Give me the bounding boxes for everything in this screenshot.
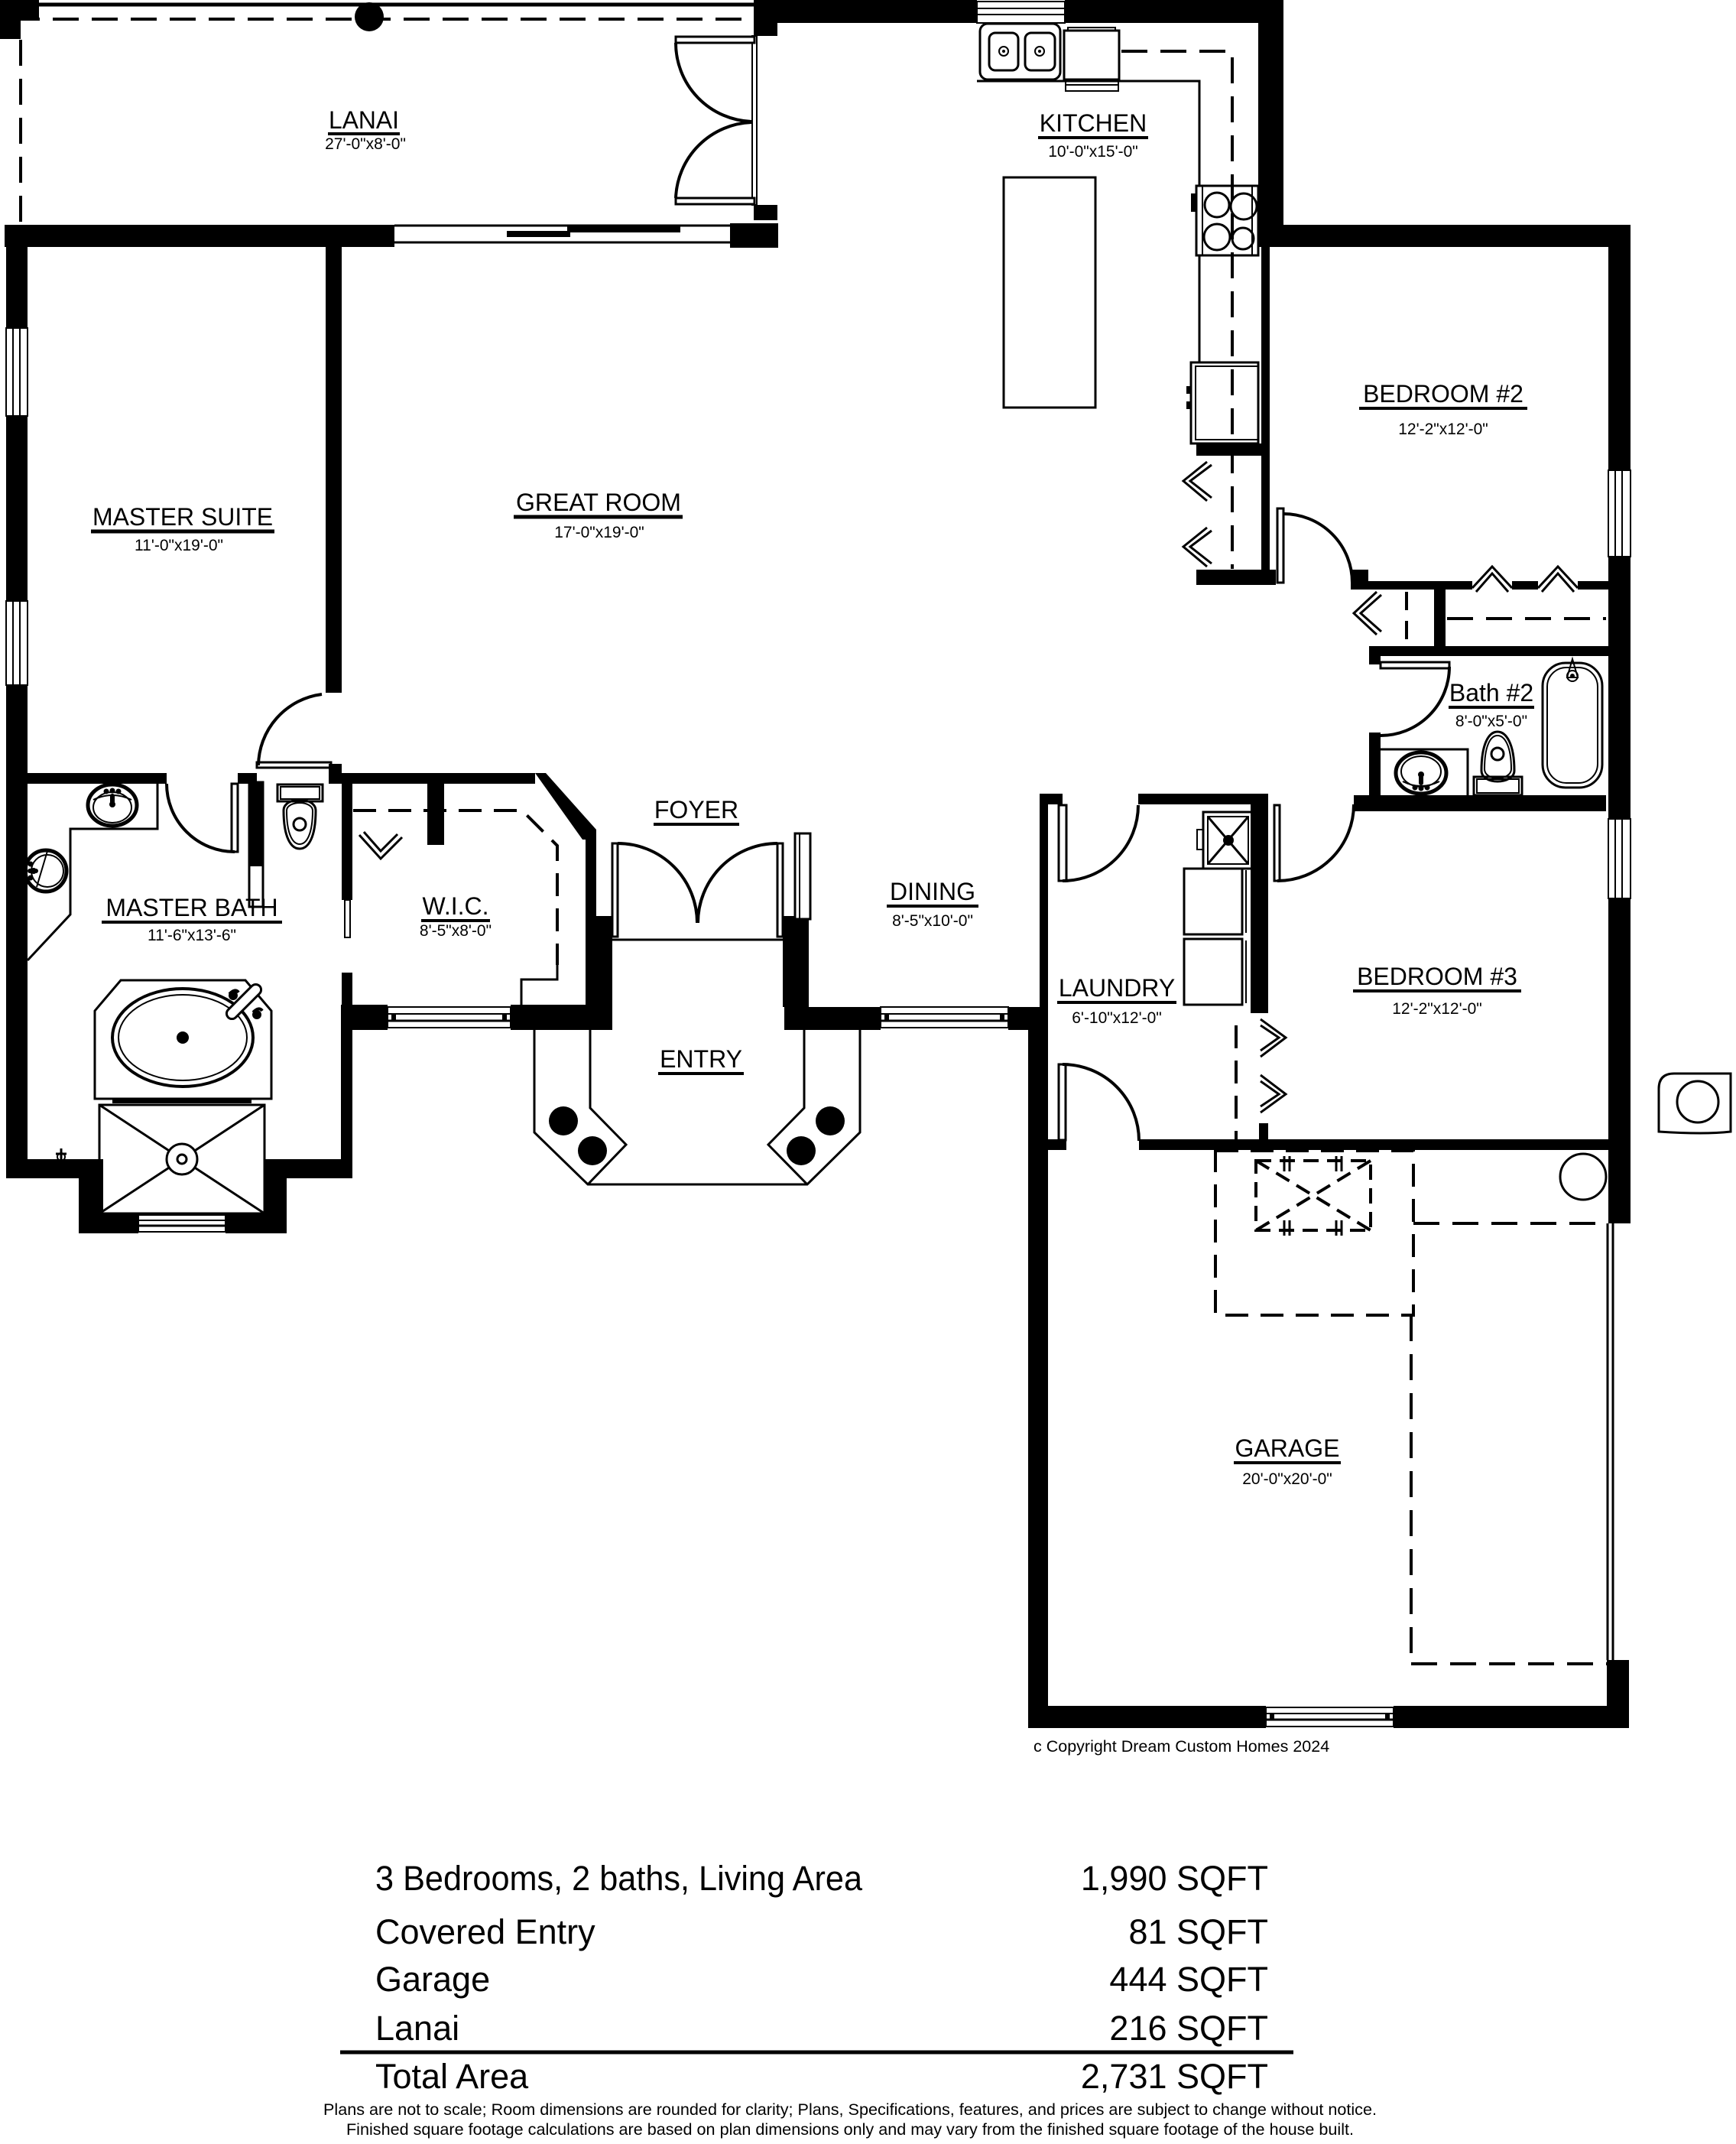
svg-text:GARAGE: GARAGE [1235, 1434, 1340, 1462]
svg-text:Total Area: Total Area [375, 2057, 529, 2096]
svg-text:12'-2"x12'-0": 12'-2"x12'-0" [1392, 1000, 1482, 1018]
svg-text:20'-0"x20'-0": 20'-0"x20'-0" [1242, 1470, 1332, 1488]
svg-text:8'-5"x8'-0": 8'-5"x8'-0" [420, 922, 492, 940]
svg-text:Lanai: Lanai [375, 2009, 459, 2048]
svg-text:MASTER BATH: MASTER BATH [105, 894, 277, 921]
svg-text:LANAI: LANAI [329, 106, 399, 134]
svg-text:c Copyright Dream Custom Homes: c Copyright Dream Custom Homes 2024 [1033, 1737, 1329, 1756]
svg-text:Garage: Garage [375, 1960, 490, 1999]
svg-text:3 Bedrooms, 2 baths, Living Ar: 3 Bedrooms, 2 baths, Living Area [375, 1859, 863, 1898]
svg-text:BEDROOM #2: BEDROOM #2 [1363, 380, 1523, 408]
svg-text:81 SQFT: 81 SQFT [1128, 1912, 1268, 1951]
svg-text:KITCHEN: KITCHEN [1040, 109, 1147, 137]
svg-text:6'-10"x12'-0": 6'-10"x12'-0" [1072, 1009, 1162, 1027]
svg-text:GREAT ROOM: GREAT ROOM [516, 489, 681, 516]
svg-text:LAUNDRY: LAUNDRY [1059, 974, 1175, 1002]
svg-text:8'-5"x10'-0": 8'-5"x10'-0" [892, 912, 973, 930]
svg-text:11'-6"x13'-6": 11'-6"x13'-6" [148, 927, 236, 944]
svg-text:2,731 SQFT: 2,731 SQFT [1081, 2057, 1268, 2096]
svg-text:27'-0"x8'-0": 27'-0"x8'-0" [325, 135, 406, 153]
svg-text:11'-0"x19'-0": 11'-0"x19'-0" [135, 537, 223, 554]
svg-text:DINING: DINING [890, 878, 975, 905]
svg-text:FOYER: FOYER [654, 796, 738, 823]
svg-text:216 SQFT: 216 SQFT [1109, 2009, 1268, 2048]
svg-text:17'-0"x19'-0": 17'-0"x19'-0" [554, 524, 644, 541]
svg-text:Bath #2: Bath #2 [1449, 679, 1533, 707]
svg-text:W.I.C.: W.I.C. [422, 892, 488, 920]
svg-text:BEDROOM #3: BEDROOM #3 [1357, 963, 1517, 990]
svg-text:Finished square footage calcul: Finished square footage calculations are… [346, 2120, 1354, 2139]
svg-text:ENTRY: ENTRY [660, 1045, 742, 1073]
svg-text:8'-0"x5'-0": 8'-0"x5'-0" [1455, 713, 1527, 730]
svg-text:Covered Entry: Covered Entry [375, 1912, 595, 1951]
svg-text:1,990 SQFT: 1,990 SQFT [1081, 1859, 1268, 1898]
svg-text:10'-0"x15'-0": 10'-0"x15'-0" [1048, 143, 1138, 161]
svg-text:MASTER SUITE: MASTER SUITE [92, 503, 273, 531]
svg-text:444 SQFT: 444 SQFT [1109, 1960, 1268, 1999]
svg-text:12'-2"x12'-0": 12'-2"x12'-0" [1398, 421, 1488, 438]
svg-text:Plans are not to scale; Room d: Plans are not to scale; Room dimensions … [323, 2100, 1377, 2119]
